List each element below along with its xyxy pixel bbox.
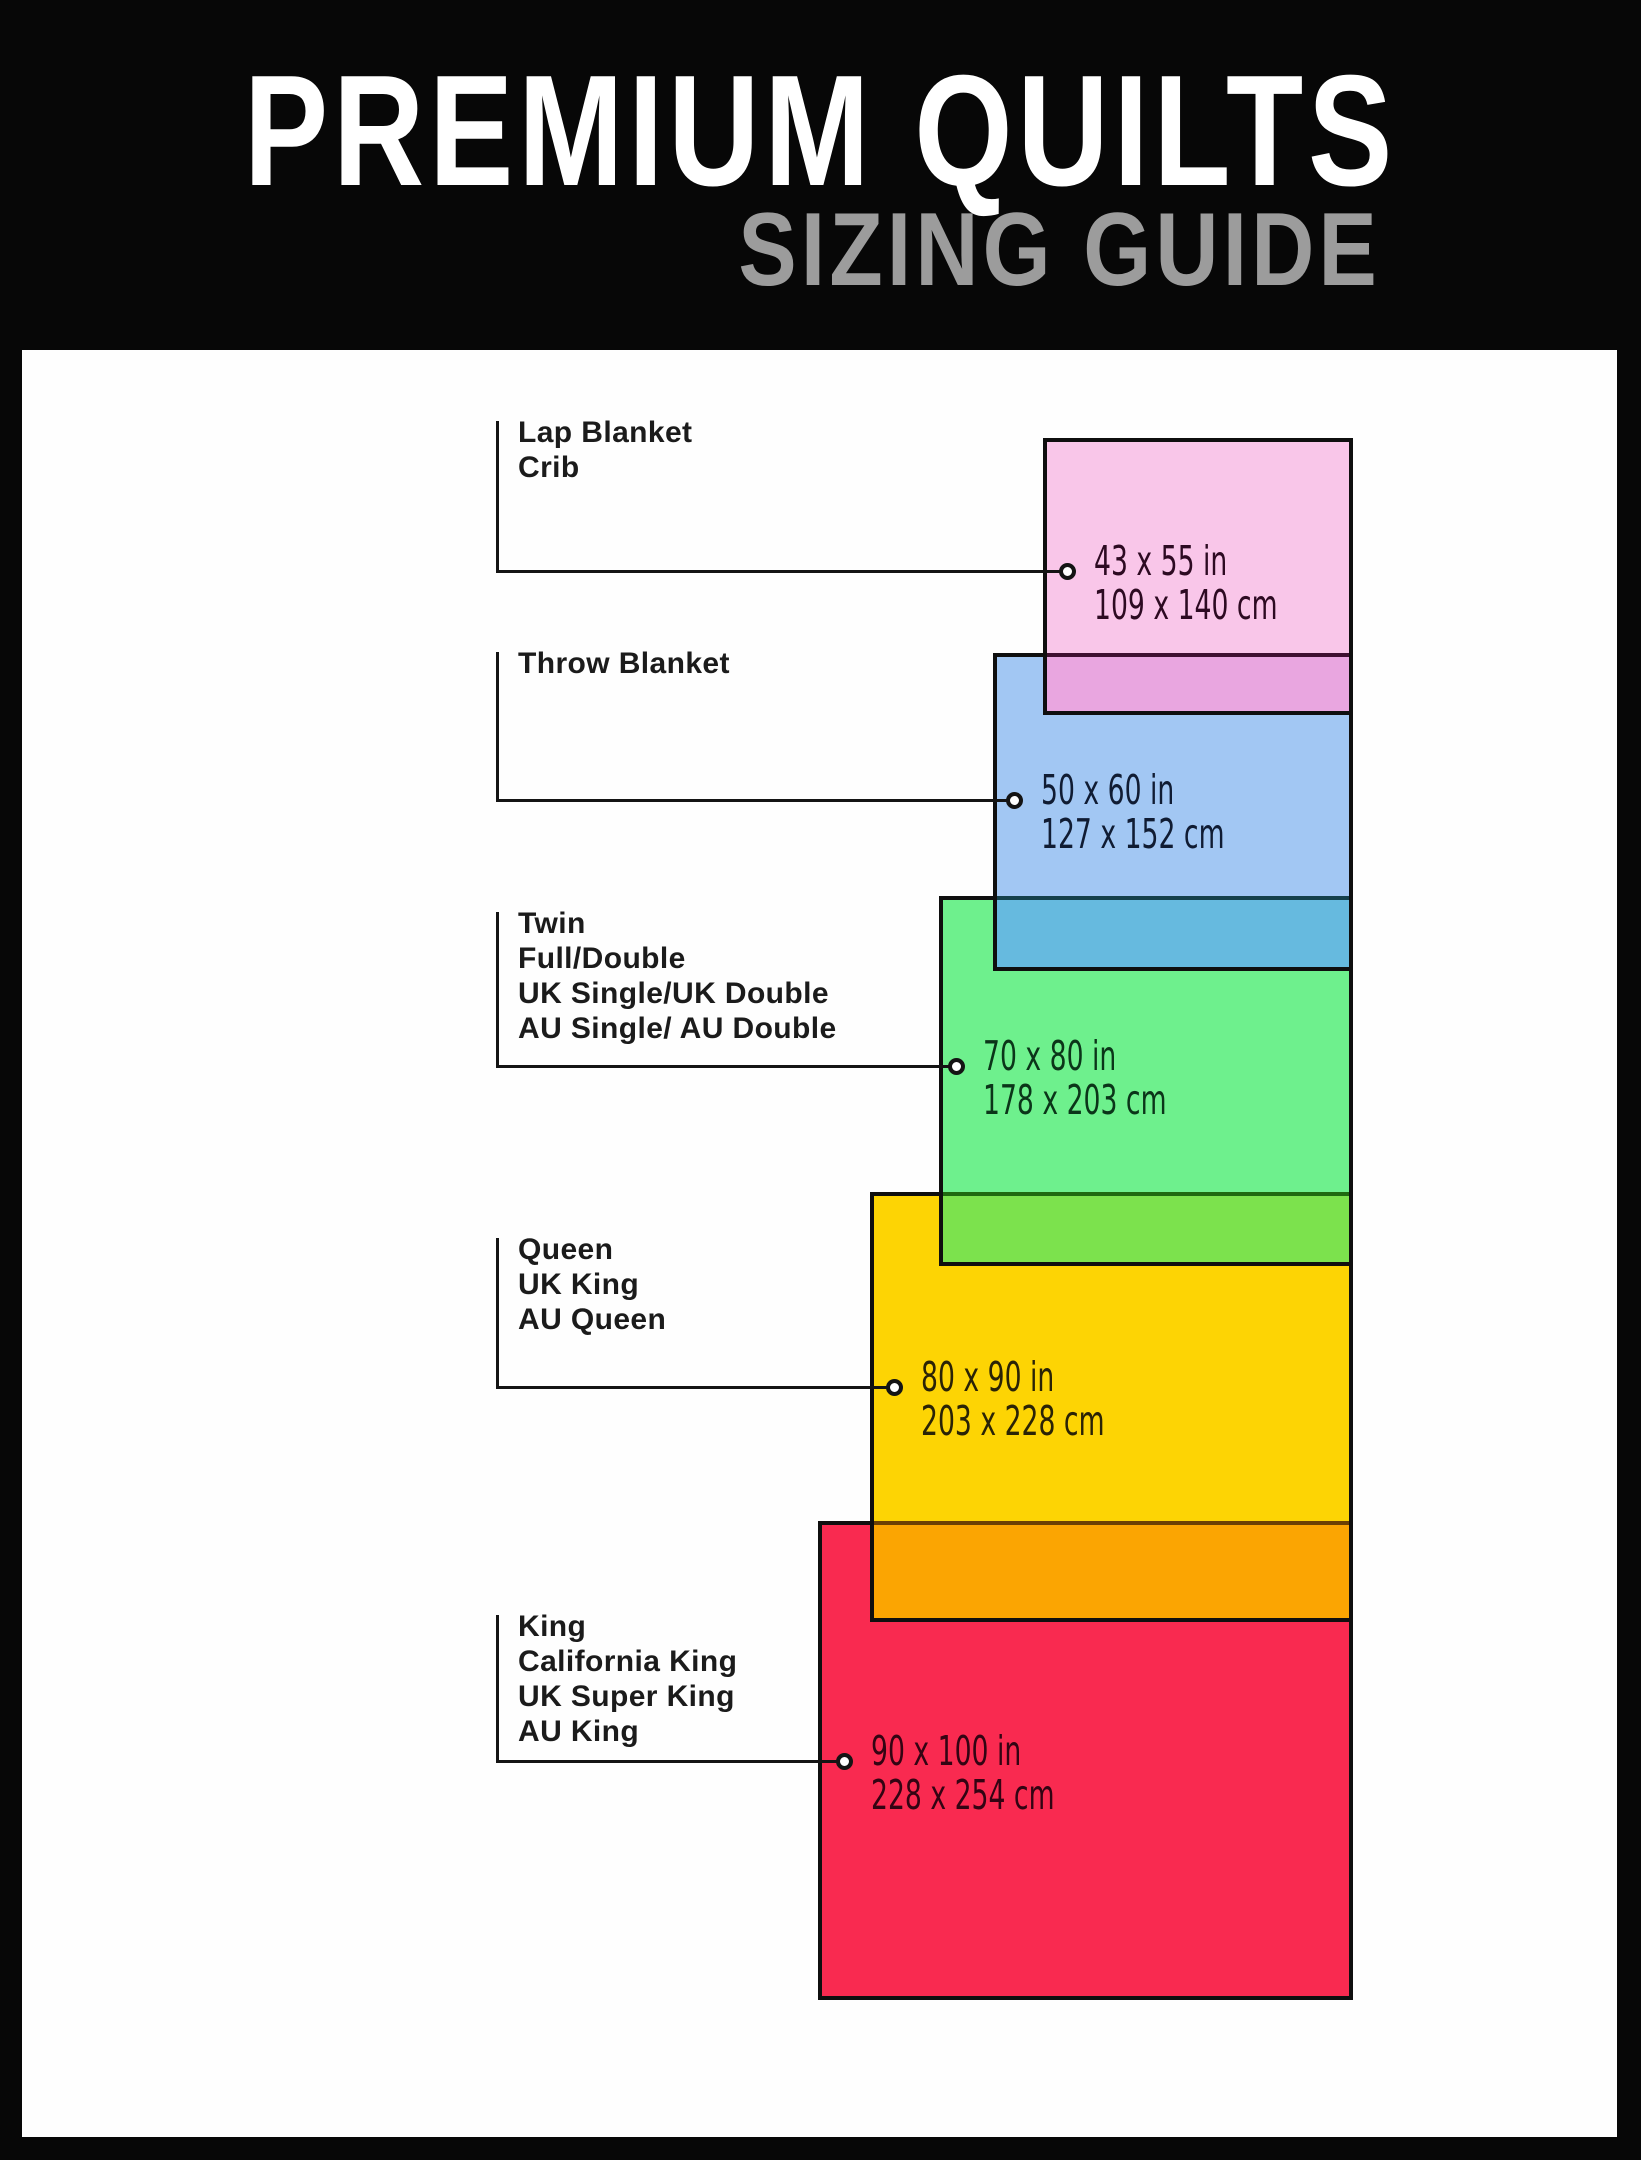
dimensions-twin: 70 x 80 in 178 x 203 cm xyxy=(983,1034,1167,1122)
bracket-hline-king xyxy=(496,1760,837,1763)
label-line: Twin xyxy=(518,906,837,941)
dimensions-throw: 50 x 60 in 127 x 152 cm xyxy=(1041,768,1225,856)
dimension-inches: 90 x 100 in xyxy=(871,1729,1055,1773)
bracket-hline-twin xyxy=(496,1065,949,1068)
dimension-cm: 127 x 152 cm xyxy=(1041,812,1225,856)
bracket-hline-queen xyxy=(496,1386,887,1389)
marker-circle-king xyxy=(836,1753,853,1770)
overlap-band-throw-twin xyxy=(997,896,1349,967)
page-title: PREMIUM QUILTS xyxy=(164,52,1477,210)
label-line: Queen xyxy=(518,1232,666,1267)
dimensions-lap-crib: 43 x 55 in 109 x 140 cm xyxy=(1094,539,1278,627)
label-line: AU Queen xyxy=(518,1302,666,1337)
bracket-vline-king xyxy=(496,1615,499,1763)
label-line: California King xyxy=(518,1644,737,1679)
label-line: AU King xyxy=(518,1714,737,1749)
marker-circle-twin xyxy=(948,1058,965,1075)
marker-circle-throw xyxy=(1006,792,1023,809)
label-line: Full/Double xyxy=(518,941,837,976)
label-block-lap-crib: Lap Blanket Crib xyxy=(518,415,692,485)
dimension-cm: 178 x 203 cm xyxy=(983,1078,1167,1122)
dimension-inches: 80 x 90 in xyxy=(921,1355,1105,1399)
label-line: King xyxy=(518,1609,737,1644)
marker-circle-lap-crib xyxy=(1059,563,1076,580)
label-block-king: King California King UK Super King AU Ki… xyxy=(518,1609,737,1749)
dimensions-king: 90 x 100 in 228 x 254 cm xyxy=(871,1729,1055,1817)
bracket-vline-lap-crib xyxy=(496,421,499,573)
dimensions-queen: 80 x 90 in 203 x 228 cm xyxy=(921,1355,1105,1443)
label-line: UK King xyxy=(518,1267,666,1302)
overlap-band-lap-throw xyxy=(1047,653,1349,711)
label-block-throw: Throw Blanket xyxy=(518,646,730,681)
bracket-hline-throw xyxy=(496,799,1007,802)
marker-circle-queen xyxy=(886,1379,903,1396)
dimension-inches: 43 x 55 in xyxy=(1094,539,1278,583)
label-line: Lap Blanket xyxy=(518,415,692,450)
label-line: AU Single/ AU Double xyxy=(518,1011,837,1046)
dimension-cm: 203 x 228 cm xyxy=(921,1399,1105,1443)
dimension-inches: 50 x 60 in xyxy=(1041,768,1225,812)
label-line: UK Super King xyxy=(518,1679,737,1714)
dimension-inches: 70 x 80 in xyxy=(983,1034,1167,1078)
overlap-band-queen-king xyxy=(874,1521,1349,1618)
overlap-band-twin-queen xyxy=(943,1192,1349,1262)
bracket-vline-throw xyxy=(496,652,499,802)
label-block-queen: Queen UK King AU Queen xyxy=(518,1232,666,1337)
label-line: Throw Blanket xyxy=(518,646,730,681)
bracket-vline-queen xyxy=(496,1238,499,1389)
label-block-twin: Twin Full/Double UK Single/UK Double AU … xyxy=(518,906,837,1046)
label-line: Crib xyxy=(518,450,692,485)
dimension-cm: 109 x 140 cm xyxy=(1094,583,1278,627)
bracket-vline-twin xyxy=(496,912,499,1068)
bracket-hline-lap-crib xyxy=(496,570,1060,573)
label-line: UK Single/UK Double xyxy=(518,976,837,1011)
page-subtitle: SIZING GUIDE xyxy=(738,198,1381,302)
dimension-cm: 228 x 254 cm xyxy=(871,1773,1055,1817)
